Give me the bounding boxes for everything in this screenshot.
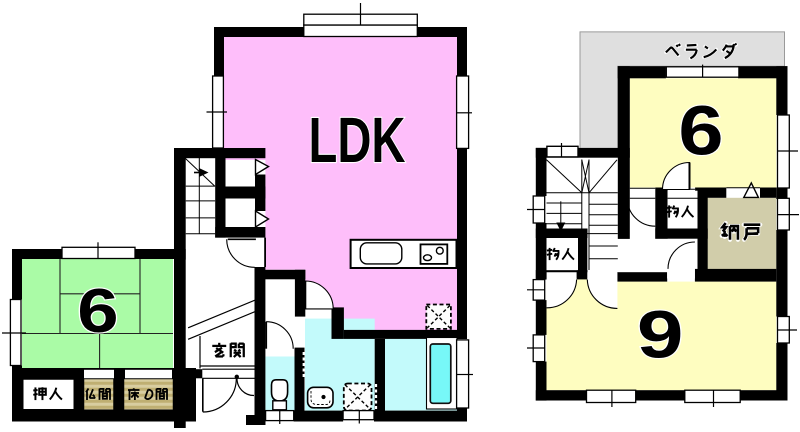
svg-text:LDK: LDK xyxy=(309,104,406,176)
svg-text:6: 6 xyxy=(77,276,118,346)
svg-text:6: 6 xyxy=(678,92,723,170)
svg-text:9: 9 xyxy=(637,297,684,372)
